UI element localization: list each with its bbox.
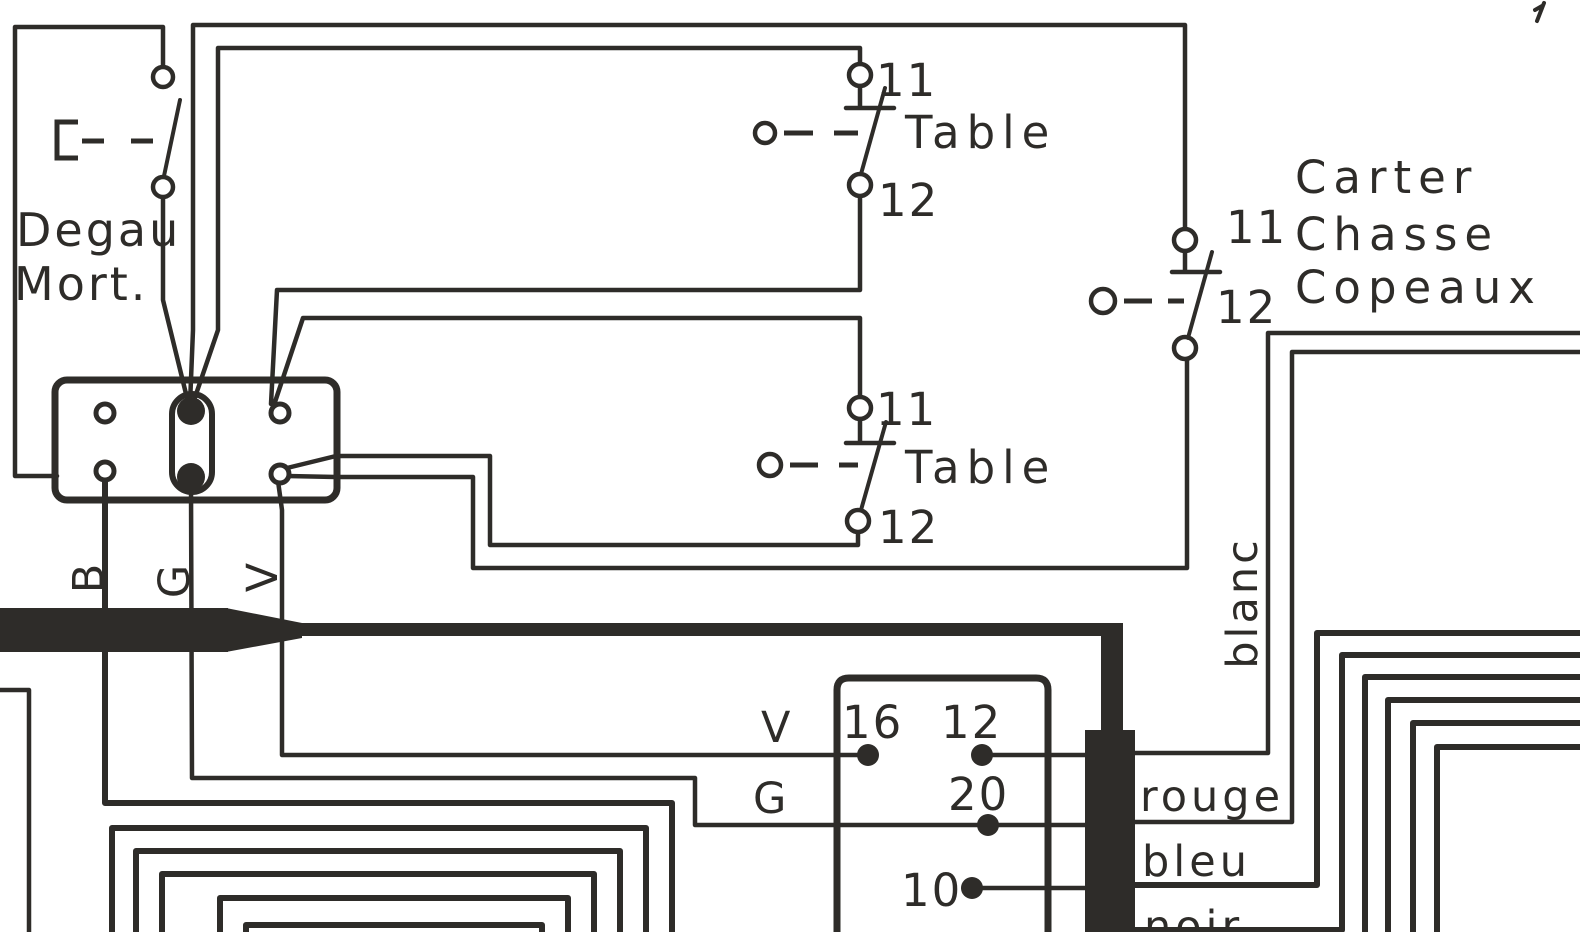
table-mid-label-11: 11: [876, 383, 937, 436]
label-v-mid: V: [761, 703, 794, 753]
terminal-block: [55, 380, 337, 500]
junction-box: 16 12 20 10 V G: [753, 678, 1048, 932]
table-top-actuator: [755, 123, 775, 143]
degau-label-line2: Mort.: [14, 257, 148, 311]
coil-right-turn-3: [1365, 677, 1580, 932]
cable-horizontal-thin: [300, 623, 1112, 636]
wire-carter-11-run: [190, 25, 1185, 404]
wire-colour-names: rouge bleu noir: [1140, 772, 1284, 932]
carter-label-line3: Copeaux: [1295, 261, 1542, 314]
carter-actuator: [1091, 289, 1115, 313]
carter-label-11: 11: [1226, 201, 1287, 254]
carter-contact-11: [1174, 229, 1196, 251]
carter-label-12: 12: [1216, 281, 1277, 334]
label-conductor-v: V: [238, 560, 288, 592]
table-switch-mid: 11 12 Table: [759, 383, 1056, 554]
carter-label-line2: Chasse: [1295, 208, 1499, 261]
table-mid-label-12: 12: [878, 501, 939, 554]
label-g-mid: G: [753, 774, 790, 824]
table-top-contact-12: [849, 174, 871, 196]
wire-left-edge: [0, 690, 29, 932]
degau-actuator-bracket: [57, 122, 78, 158]
table-mid-contact-12: [847, 510, 869, 532]
table-mid-label: Table: [904, 441, 1056, 494]
cable-taper: [226, 608, 302, 652]
degau-switch: Degau Mort.: [14, 67, 181, 311]
block-terminal-spare: [96, 404, 114, 422]
block-terminal-bottom-mid: [177, 463, 205, 491]
schematic-canvas: Degau Mort. 11 12 Table 11 12 Table: [0, 0, 1580, 932]
coil-left-turn-3: [136, 851, 620, 932]
degau-contact-bottom: [153, 177, 173, 197]
wire-blanc-1: [1130, 333, 1580, 753]
table-top-label: Table: [904, 106, 1056, 159]
carter-blade: [1188, 252, 1212, 338]
cable-vertical-wide: [1085, 730, 1135, 932]
junction-label-16: 16: [842, 696, 903, 749]
block-terminal-bottom-left: [96, 462, 114, 480]
label-wire-noir: noir: [1144, 902, 1243, 932]
table-top-label-11: 11: [876, 54, 937, 107]
junction-label-12: 12: [941, 696, 1002, 749]
wiring-diagram-scan: Degau Mort. 11 12 Table 11 12 Table: [0, 0, 1580, 932]
degau-blade: [164, 100, 180, 176]
junction-dot-10: [961, 877, 983, 899]
label-wire-blanc: blanc: [1218, 537, 1268, 669]
label-conductor-g: G: [150, 562, 200, 598]
coil-right-turn-4: [1388, 700, 1580, 932]
block-terminal-top-right: [271, 404, 289, 422]
table-mid-actuator: [759, 454, 781, 476]
carter-contact-12: [1174, 337, 1196, 359]
wire-table-top-12-run: [271, 197, 860, 404]
cable-vertical-narrow: [1101, 623, 1123, 735]
table-mid-contact-11: [849, 397, 871, 419]
coil-right-turn-6: [1437, 747, 1580, 932]
table-top-label-12: 12: [878, 174, 939, 227]
block-terminal-top-mid: [177, 397, 205, 425]
label-wire-bleu: bleu: [1142, 837, 1251, 887]
carter-switch: 11 12 Carter Chasse Copeaux: [1091, 151, 1542, 359]
left-coil-winding: [112, 828, 646, 932]
wire-table-mid-11-run: [273, 318, 860, 408]
right-coil-winding: [1365, 677, 1580, 932]
table-top-contact-11: [849, 64, 871, 86]
junction-label-20: 20: [948, 768, 1009, 821]
scan-pen-mark: [1535, 3, 1544, 21]
cable-horizontal-thick: [0, 608, 228, 652]
table-switch-top: 11 12 Table: [755, 54, 1056, 227]
degau-contact-top: [153, 67, 173, 87]
label-wire-rouge: rouge: [1140, 772, 1284, 822]
carter-label-line1: Carter: [1295, 151, 1478, 204]
junction-label-10: 10: [901, 864, 962, 917]
degau-label-line1: Degau: [16, 203, 181, 257]
coil-left-turn-6: [246, 925, 542, 932]
block-terminal-bottom-right: [271, 465, 289, 483]
conductor-labels: B G V blanc: [64, 537, 1268, 669]
label-conductor-b: B: [64, 561, 114, 594]
